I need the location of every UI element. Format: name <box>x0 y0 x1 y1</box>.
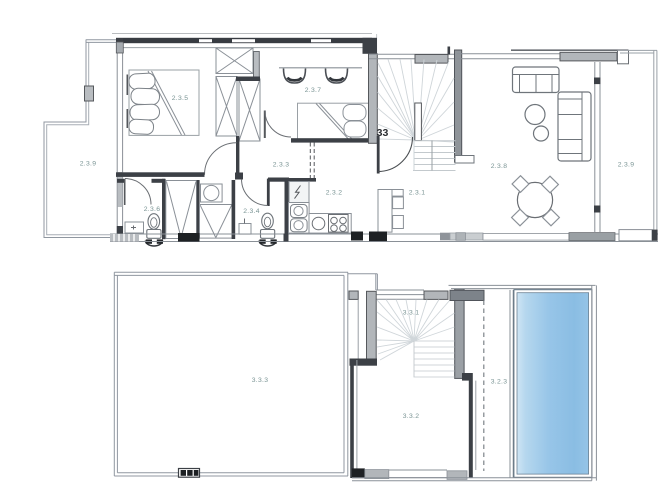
svg-text:2.3.6: 2.3.6 <box>144 206 161 213</box>
svg-text:2.3.3: 2.3.3 <box>273 162 290 169</box>
svg-text:2.3.5: 2.3.5 <box>172 95 189 102</box>
svg-text:3.3.2: 3.3.2 <box>403 413 420 420</box>
svg-text:33: 33 <box>377 127 389 139</box>
svg-text:2.3.7: 2.3.7 <box>305 87 322 94</box>
svg-text:2.3.9: 2.3.9 <box>618 162 635 169</box>
svg-text:2.3.1: 2.3.1 <box>409 190 426 197</box>
svg-text:3.3.1: 3.3.1 <box>403 310 420 317</box>
svg-text:2.3.4: 2.3.4 <box>243 208 260 215</box>
svg-text:3.2.3: 3.2.3 <box>491 379 508 386</box>
svg-text:3.3.3: 3.3.3 <box>252 377 269 384</box>
svg-text:2.3.2: 2.3.2 <box>326 190 343 197</box>
svg-text:2.3.9: 2.3.9 <box>80 161 97 168</box>
svg-text:2.3.8: 2.3.8 <box>491 163 508 170</box>
